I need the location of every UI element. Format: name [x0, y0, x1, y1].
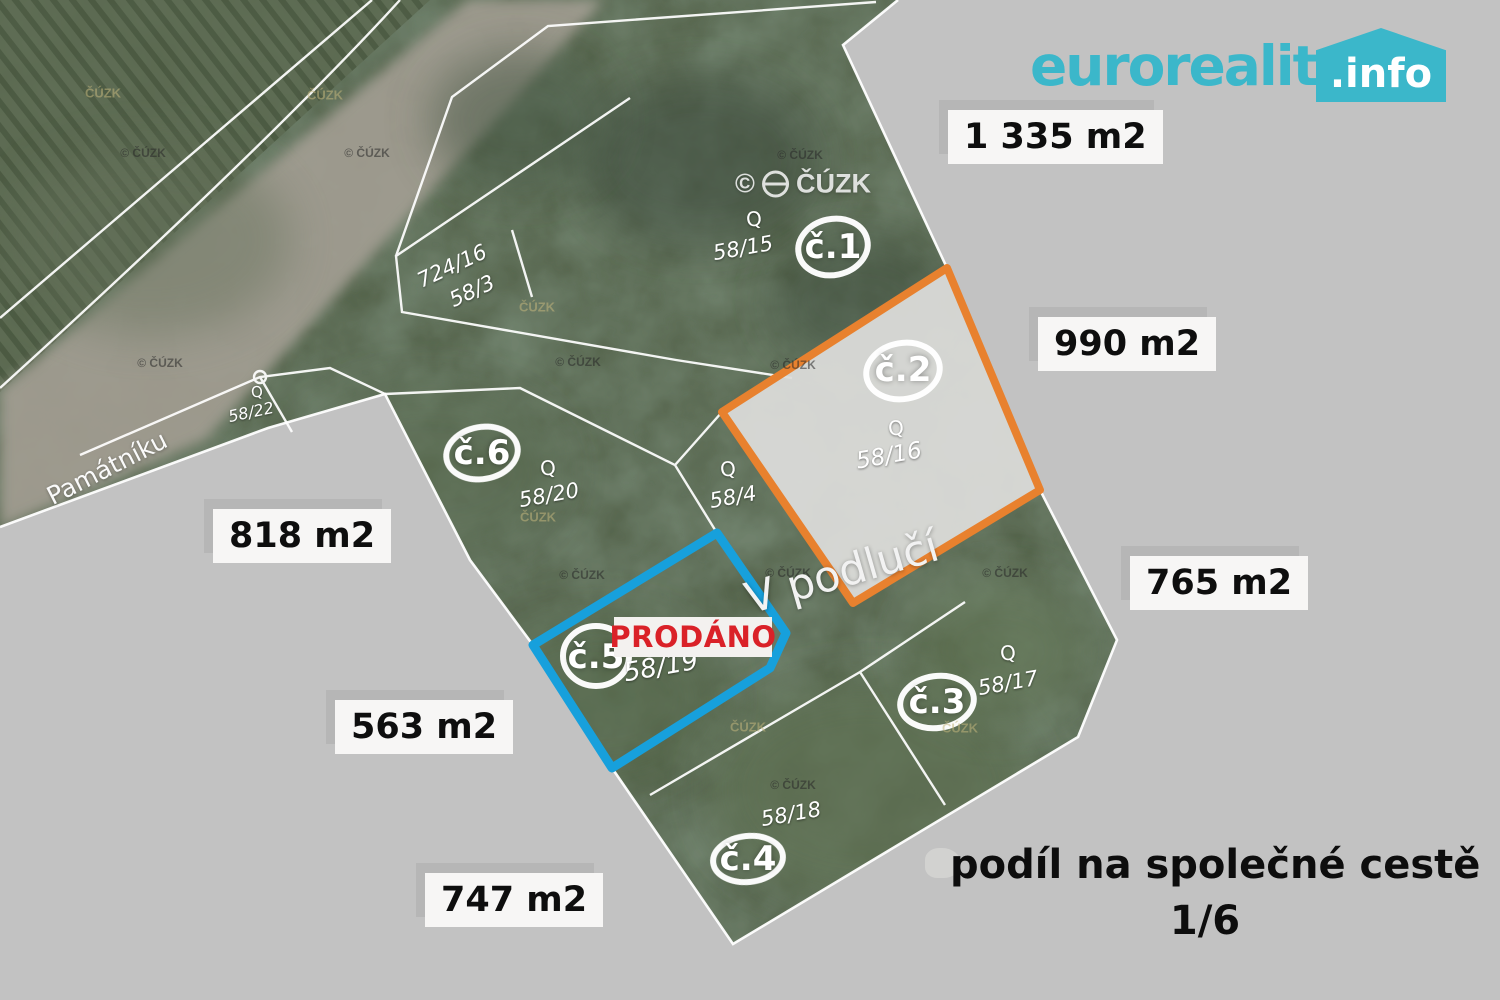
area-label-plot-6: 818 m2 [213, 509, 391, 563]
culture-symbol-icon: Q [999, 640, 1017, 666]
plot-badge-6: č.6 [454, 433, 511, 473]
cuzk-watermark: © ČÚZK [555, 355, 601, 369]
area-label-plot-2: 990 m2 [1038, 317, 1216, 371]
cuzk-watermark-plain: ČÚZK [519, 300, 555, 315]
culture-symbol-icon: Q [887, 415, 905, 441]
culture-symbol-icon: Q [250, 382, 264, 401]
shared-road-fraction: 1/6 [950, 898, 1460, 944]
cuzk-watermark-plain: ČÚZK [730, 720, 766, 735]
area-label-plot-1: 1 335 m2 [948, 110, 1163, 164]
cuzk-watermark: © ČÚZK [137, 356, 183, 370]
cuzk-watermark: © ČÚZK [559, 568, 605, 582]
cuzk-text: ČÚZK [796, 169, 871, 200]
plot-badge-3: č.3 [909, 682, 966, 722]
area-label-plot-5: 563 m2 [335, 700, 513, 754]
cuzk-watermark: © ČÚZK [770, 778, 816, 792]
cuzk-watermark-large: © ČÚZK [735, 169, 871, 200]
cuzk-watermark-plain: ČÚZK [520, 510, 556, 525]
shared-road-note: podíl na společné cestě [950, 842, 1460, 888]
cuzk-watermark-plain: ČÚZK [942, 721, 978, 736]
sold-badge: PRODÁNO [614, 617, 772, 657]
copyright-symbol: © [735, 169, 755, 200]
culture-symbol-icon: Q [745, 206, 763, 232]
cuzk-watermark: © ČÚZK [777, 148, 823, 162]
culture-symbol-icon: Q [539, 455, 557, 481]
cuzk-watermark: © ČÚZK [120, 146, 166, 160]
plot-badge-1: č.1 [805, 227, 862, 267]
area-label-plot-3: 765 m2 [1130, 556, 1308, 610]
cuzk-watermark-plain: ČÚZK [307, 88, 343, 103]
cuzk-watermark: © ČÚZK [982, 566, 1028, 580]
globe-icon [762, 171, 789, 198]
cuzk-watermark: © ČÚZK [770, 358, 816, 372]
culture-symbol-icon: Q [719, 456, 737, 482]
plot-badge-2: č.2 [875, 350, 932, 390]
area-label-plot-4: 747 m2 [425, 873, 603, 927]
brand-logo-tld: .info [1330, 54, 1432, 102]
cuzk-watermark-plain: ČÚZK [85, 86, 121, 101]
brand-logo-text: euroreality [1030, 34, 1351, 98]
plot-badge-4: č.4 [720, 839, 777, 879]
cuzk-watermark: © ČÚZK [344, 146, 390, 160]
listing-map-image: © ČÚZK © ČÚZK © ČÚZK © ČÚZK © ČÚZK © ČÚZ… [0, 0, 1500, 1000]
